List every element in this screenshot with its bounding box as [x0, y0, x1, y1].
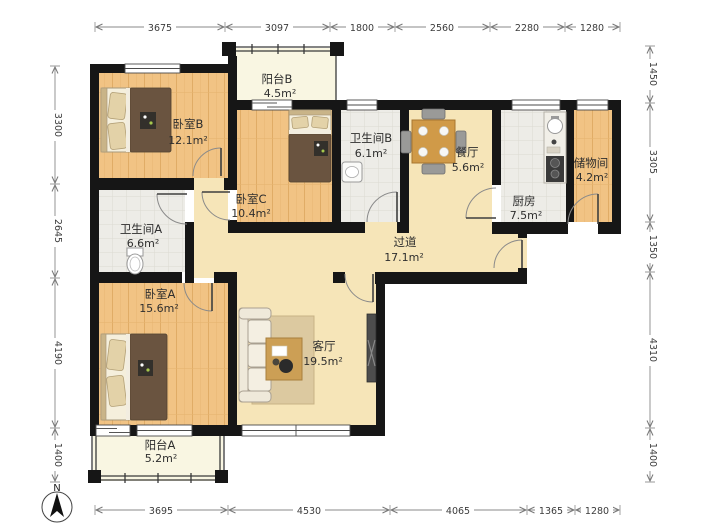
- dim-left-2: 4190: [52, 341, 63, 365]
- dim-right-4: 1400: [647, 443, 658, 467]
- dim-right-2: 1350: [647, 235, 658, 259]
- toilet-icon: [127, 248, 143, 274]
- room-area-balcony-b: 4.5m²: [264, 87, 297, 100]
- bed-icon-bedroom-b: [101, 88, 171, 152]
- dim-top-0: 3675: [148, 23, 172, 34]
- room-area-bedroom-a: 15.6m²: [139, 302, 179, 315]
- dim-right-3: 4310: [647, 338, 658, 362]
- dim-top-2: 1800: [350, 23, 374, 34]
- room-area-bedroom-c: 10.4m²: [231, 207, 271, 220]
- room-area-dining: 5.6m²: [452, 161, 485, 174]
- room-area-balcony-a: 5.2m²: [145, 452, 178, 465]
- dim-bottom-0: 3695: [149, 506, 173, 517]
- floor-plan-canvas: 卧室B 12.1m² 阳台B 4.5m² 卧室C 10.4m² 卫生间B 6.1…: [0, 0, 710, 532]
- room-label-living: 客厅: [313, 339, 336, 353]
- room-label-bedroom-a: 卧室A: [145, 287, 176, 301]
- room-label-storage: 储物间: [574, 156, 609, 170]
- dim-right-0: 1450: [647, 62, 658, 86]
- room-label-dining: 餐厅: [456, 145, 479, 159]
- north-compass-icon: N: [42, 483, 72, 522]
- washbasin-icon: [342, 162, 362, 182]
- room-label-balcony-b: 阳台B: [262, 72, 293, 86]
- dim-left-1: 2645: [52, 219, 63, 243]
- dim-top-3: 2560: [430, 23, 454, 34]
- bed-icon-bedroom-c: [289, 110, 331, 182]
- room-label-bathroom-a: 卫生间A: [120, 222, 162, 236]
- dim-left-3: 1400: [52, 443, 63, 467]
- sliding-door-balcony-a: [96, 425, 130, 436]
- sliding-door-balcony-b: [252, 100, 292, 110]
- room-area-storage: 4.2m²: [576, 171, 609, 184]
- dim-top-5: 1280: [580, 23, 604, 34]
- dim-bottom-4: 1280: [585, 506, 609, 517]
- dim-top-4: 2280: [515, 23, 539, 34]
- room-label-balcony-a: 阳台A: [145, 438, 176, 452]
- room-area-bathroom-a: 6.6m²: [127, 237, 160, 250]
- room-label-bathroom-b: 卫生间B: [350, 131, 392, 145]
- dim-right-1: 3305: [647, 150, 658, 174]
- room-label-bedroom-c: 卧室C: [235, 192, 266, 206]
- room-area-bathroom-b: 6.1m²: [355, 147, 388, 160]
- room-label-corridor: 过道: [394, 235, 417, 249]
- tv-console-icon: [367, 314, 376, 382]
- dim-bottom-3: 1365: [539, 506, 563, 517]
- floor-plan-svg: 卧室B 12.1m² 阳台B 4.5m² 卧室C 10.4m² 卫生间B 6.1…: [0, 0, 710, 532]
- bed-icon-bedroom-a: [101, 334, 167, 420]
- coffee-table-icon: [266, 338, 302, 380]
- dim-bottom-1: 4530: [297, 506, 321, 517]
- room-area-living: 19.5m²: [303, 355, 343, 368]
- room-label-kitchen: 厨房: [513, 194, 536, 208]
- room-area-corridor: 17.1m²: [384, 251, 424, 264]
- room-area-kitchen: 7.5m²: [510, 209, 543, 222]
- kitchen-counter-icon: [544, 112, 566, 183]
- room-label-bedroom-b: 卧室B: [173, 117, 204, 131]
- dim-bottom-2: 4065: [446, 506, 470, 517]
- dim-top-1: 3097: [265, 23, 289, 34]
- room-area-bedroom-b: 12.1m²: [168, 134, 208, 147]
- compass-n-label: N: [53, 483, 60, 494]
- dim-left-0: 3300: [52, 113, 63, 137]
- dim-right: [645, 46, 655, 482]
